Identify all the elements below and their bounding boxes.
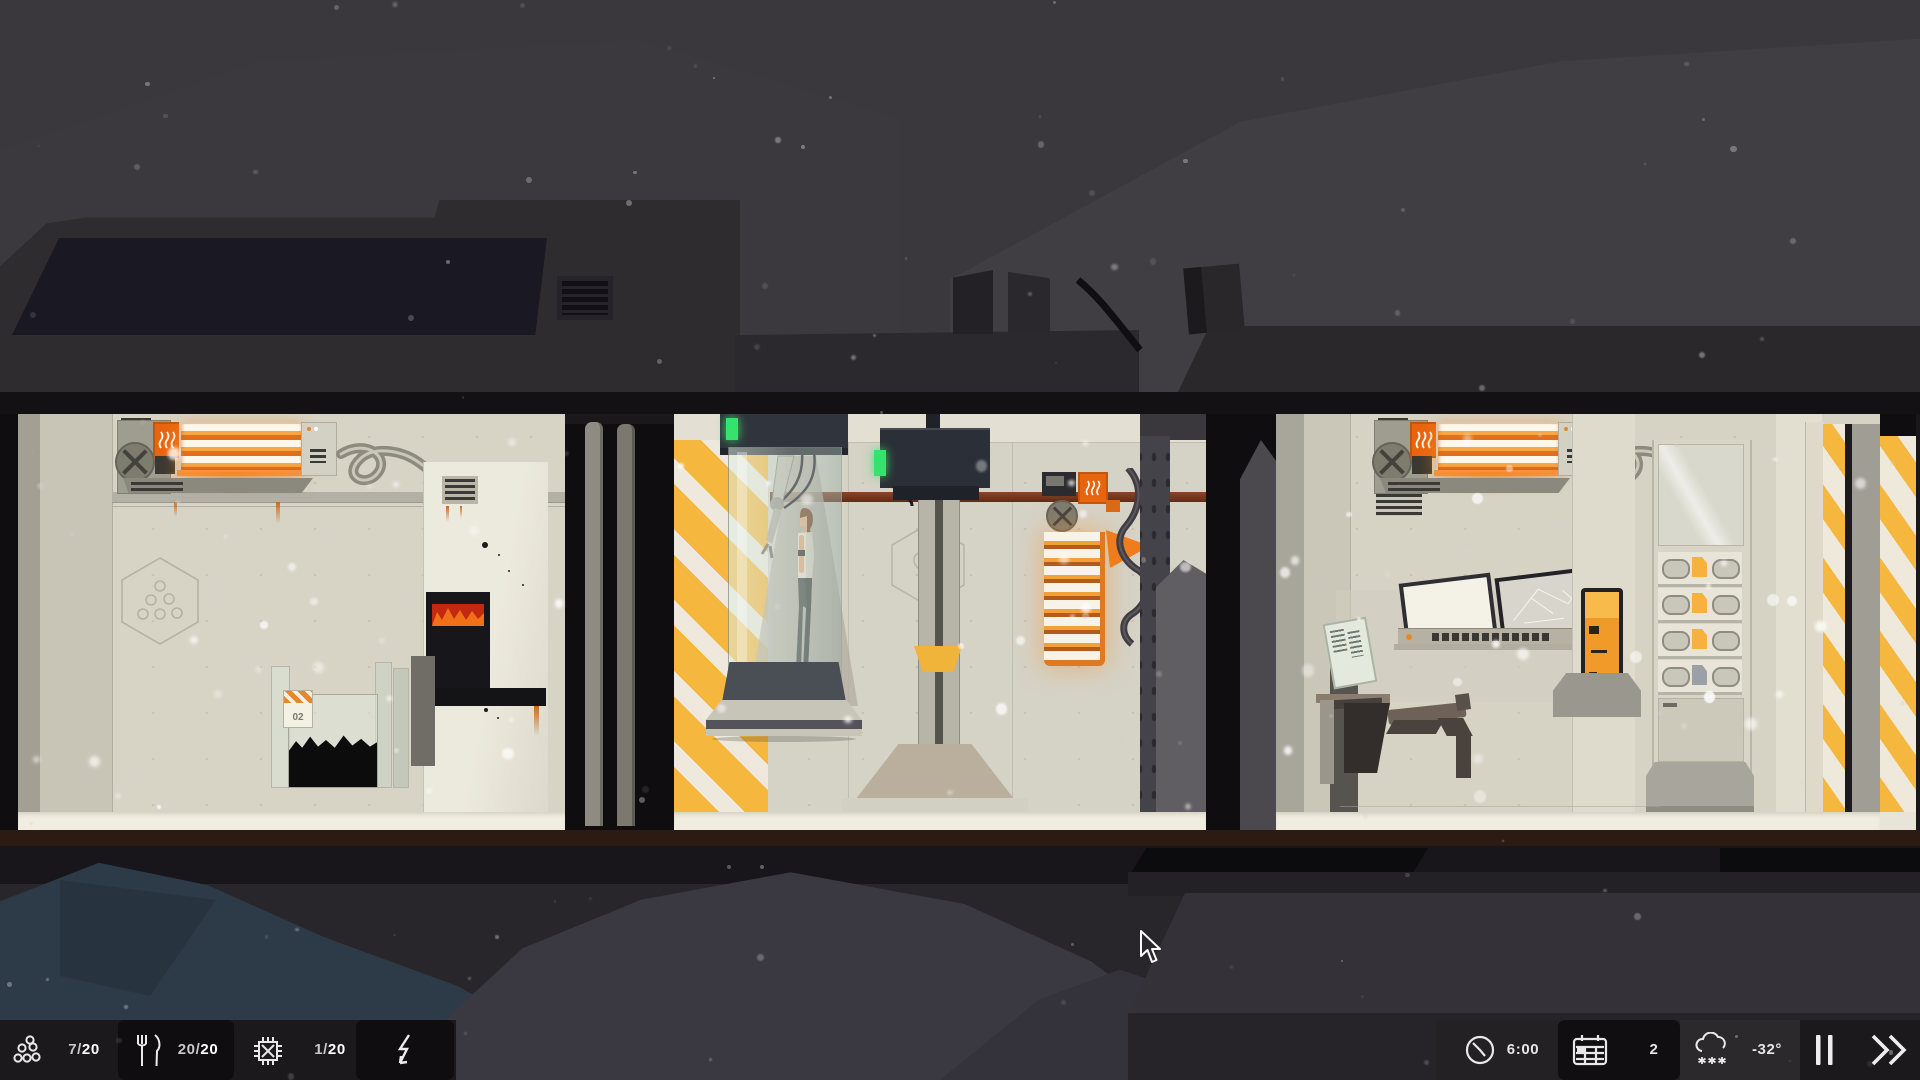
mouse-cursor (1138, 930, 1166, 966)
poster-block (1585, 592, 1619, 618)
chair-back (1455, 693, 1471, 711)
hud-left-cluster: 7/20 20/20 1/20 (0, 1020, 456, 1080)
drawer-handle (1712, 667, 1740, 687)
scrap-bin[interactable]: 02 (253, 642, 425, 818)
scanner-indicator-green (874, 450, 886, 476)
angular-slab (1156, 560, 1206, 832)
locker-drawer[interactable] (1658, 588, 1742, 623)
snow-particle (145, 82, 149, 86)
locker-drawer[interactable] (1658, 624, 1742, 659)
hexagon-population-sign (120, 556, 200, 646)
day-section: 2 (1558, 1020, 1680, 1080)
food-section[interactable]: 20/20 (118, 1020, 234, 1080)
poster-mark (1591, 650, 1607, 653)
furnace-cabinet[interactable] (423, 462, 548, 814)
led (314, 427, 318, 431)
stove-counter (424, 688, 546, 706)
side-table-leg (1320, 700, 1334, 784)
hull-bottom-band (0, 830, 1920, 846)
vheater-glow-bars (1044, 532, 1105, 666)
tiny-label (1663, 703, 1677, 707)
energy-bolt-icon (390, 1032, 420, 1070)
undervent-boxes (1376, 494, 1422, 516)
locker-drawer[interactable] (1658, 552, 1742, 587)
locker-bottom-panel (1658, 698, 1744, 762)
components-counter[interactable]: 1/20 (302, 1020, 358, 1080)
room-medical (674, 414, 1206, 832)
roof-vent-grille (557, 276, 613, 320)
hull-top-band (0, 392, 1920, 416)
drawer-handle (1712, 631, 1740, 651)
led (1564, 427, 1568, 431)
energy-section[interactable] (356, 1020, 454, 1080)
clock-icon (1464, 1034, 1496, 1066)
bin-number: 02 (292, 712, 303, 723)
components-chip-icon (250, 1033, 286, 1069)
locker-plinth (1646, 762, 1754, 812)
led (1406, 634, 1412, 640)
screen-edge-dark (1916, 414, 1920, 832)
wall-pillar (1805, 422, 1824, 812)
snow-cloud-icon (1692, 1032, 1732, 1068)
drawer-card-gray (1692, 665, 1707, 685)
heat-badge-icon (153, 422, 181, 458)
drawer-handle (1662, 559, 1690, 579)
divider-room2-room3 (1206, 414, 1276, 832)
room3-wall-column-dark (1276, 414, 1304, 832)
rust-drip (534, 706, 539, 736)
game-scene: 02 (0, 0, 1920, 1080)
roof-chimney (1183, 264, 1245, 335)
survivors-counter[interactable]: 7/20 (56, 1020, 112, 1080)
room1-floor (18, 812, 565, 832)
roof-window-inset (12, 238, 547, 335)
rust-drip (446, 506, 449, 522)
drawer-card-orange (1692, 557, 1707, 577)
population-icon (12, 1034, 46, 1068)
heater-glow-bars (179, 422, 305, 474)
scanner-crossplate (893, 486, 979, 500)
hazard-strip-vertical (1823, 424, 1845, 812)
locker-glass-top (1658, 444, 1744, 546)
divider-gray-slab (1240, 440, 1278, 832)
roof-pillar-b (1008, 272, 1050, 334)
underplate-slats (131, 482, 183, 492)
drawer-handle (1662, 667, 1690, 687)
platform-band (706, 720, 862, 729)
snow-particle (1053, 1, 1056, 4)
calendar-icon (1572, 1033, 1608, 1067)
desk-keys (1432, 633, 1552, 641)
scrap-pile (289, 731, 377, 787)
scanner-base (852, 744, 1018, 804)
pod-platform-base (706, 700, 862, 736)
drawer-handle (1712, 595, 1740, 615)
foreground-panel (1128, 893, 1920, 1015)
room2-floor (674, 812, 1206, 832)
vheater-ctrl (1042, 472, 1076, 496)
playback-controls (1800, 1020, 1920, 1080)
rust-drip (460, 506, 462, 518)
heater-unit[interactable] (103, 414, 443, 524)
pod-shadow (712, 736, 856, 742)
screen-text (1347, 630, 1363, 658)
fan-icon (115, 442, 155, 482)
hazard-black-edge (1845, 424, 1852, 812)
snow-particle (1038, 141, 1045, 148)
cabinet-vent (442, 476, 478, 504)
ground-dark-band (1128, 872, 1920, 896)
food-icon (134, 1032, 162, 1070)
fast-forward-button[interactable] (1870, 1034, 1908, 1066)
roof-pillar-a (953, 270, 993, 334)
hazard-panel-far-right (1880, 436, 1916, 812)
hud-right-cluster: 6:00 2 (1436, 1020, 1920, 1080)
far-right-floor (1880, 812, 1916, 832)
roof-cable (1070, 274, 1150, 354)
snow-particle (520, 3, 525, 8)
snow-particle (1039, 115, 1042, 118)
food-counter: 20/20 (168, 1020, 228, 1080)
poster-mark (1589, 626, 1599, 634)
room3-floor (1276, 812, 1880, 832)
bin-back-slab (411, 656, 435, 766)
desk-edge-shadow (1394, 644, 1584, 650)
column-base (1553, 673, 1641, 717)
locker-cabinet[interactable] (1652, 440, 1752, 812)
divider-post (585, 422, 603, 826)
glass-highlight (737, 452, 747, 696)
drawer-card-orange (1692, 629, 1707, 649)
snow-particle (1089, 190, 1095, 196)
weather-section: -32° (1680, 1020, 1800, 1080)
day-display: 2 (1634, 1020, 1674, 1080)
desk-keyboard-strip (1398, 628, 1582, 645)
chair-leg-front (1386, 720, 1444, 734)
vheater-screen (1046, 476, 1064, 486)
drawer-handle (1662, 631, 1690, 651)
heat-badge-icon (1410, 422, 1438, 458)
stove-opening[interactable] (426, 592, 490, 692)
pause-button[interactable] (1814, 1034, 1836, 1066)
flame-row (432, 604, 484, 626)
drawer-handle (1712, 559, 1740, 579)
chair (1380, 698, 1480, 790)
heater-control-box (301, 422, 337, 476)
fan-icon (1372, 442, 1412, 482)
cabinet-vent-slats (445, 479, 475, 501)
floor-seam (1340, 806, 1660, 807)
splatter-stains (484, 708, 488, 712)
scanner-plinth (842, 798, 1028, 812)
roof-right-block (1176, 326, 1920, 396)
screen-text (1330, 629, 1348, 653)
room1-wall-column-dark (18, 414, 40, 832)
temperature-display: -32° (1738, 1020, 1796, 1080)
snow-particle (393, 2, 397, 6)
pod-cap (720, 414, 848, 448)
pod-platform-top (722, 662, 846, 702)
chair-leg (1456, 732, 1471, 778)
divider-post (617, 424, 635, 826)
pod-indicator-green (726, 418, 738, 440)
drawer-handle (1662, 595, 1690, 615)
heater-glow-bars (1436, 422, 1562, 474)
underplate-slats (1388, 482, 1440, 492)
divider-lintel (565, 414, 674, 424)
scanner-head (880, 428, 990, 488)
divider-room1-room2 (565, 414, 674, 832)
led (307, 427, 311, 431)
bin-label-card: 02 (283, 690, 313, 728)
locker-drawer[interactable] (1658, 660, 1742, 695)
snow-particle (905, 257, 907, 259)
room-storage: 02 (18, 414, 565, 832)
ctrl-slats (310, 449, 326, 463)
time-display: 6:00 (1498, 1020, 1548, 1080)
bin-post-right2 (393, 668, 409, 788)
scanner-machine[interactable] (842, 414, 1042, 814)
fan-icon (1046, 500, 1078, 532)
drawer-card-orange (1692, 593, 1707, 613)
snow-particle (1281, 77, 1285, 81)
splatter-stains (482, 542, 488, 548)
scanner-rails (918, 500, 960, 780)
snow-particle (334, 5, 339, 10)
gray-door-column (1852, 424, 1880, 812)
room-office: 04 (1276, 414, 1880, 832)
